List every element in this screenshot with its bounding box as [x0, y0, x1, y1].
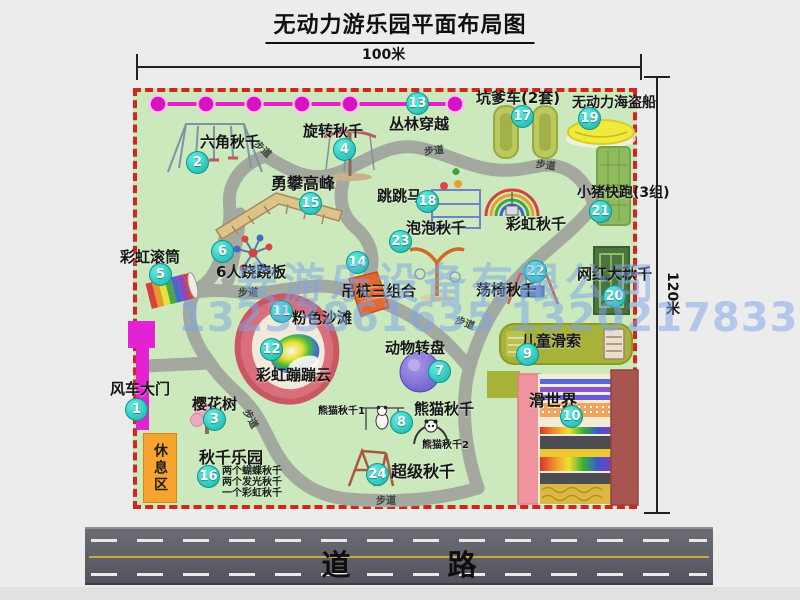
facility-badge-5: 5 — [149, 263, 172, 286]
facility-label-20: 网红大秋千 — [577, 266, 652, 283]
facility-label-15: 勇攀高峰 — [271, 175, 335, 193]
facility-label-6: 6人跷跷板 — [216, 264, 286, 281]
dim-tick-right — [640, 54, 642, 80]
facility-badge-10: 10 — [560, 405, 583, 428]
facility-badge-11: 11 — [270, 300, 293, 323]
facility-label-13: 丛林穿越 — [389, 116, 449, 133]
facility-badge-3: 3 — [203, 408, 226, 431]
road-shoulder — [0, 587, 800, 600]
facility-badge-15: 15 — [299, 192, 322, 215]
dim-tick-bottom — [644, 512, 670, 514]
facility-label-21: 小猪快跑(3组) — [577, 186, 670, 201]
walkway-label-2: 步道 — [423, 141, 444, 158]
facility-label-24: 超级秋千 — [391, 463, 455, 481]
facility-badge-12: 12 — [260, 338, 283, 361]
extra-label-2: 熊猫秋千1 — [318, 406, 365, 417]
facility-label-14: 吊桩三组合 — [341, 283, 416, 300]
facility-label-12: 彩虹蹦蹦云 — [256, 367, 331, 384]
facility-label-22: 荡椅秋千 — [476, 282, 536, 299]
facility-label-16: 秋千乐园 — [199, 449, 263, 467]
walkway-label-3: 步道 — [535, 155, 557, 173]
road: 道 路 — [85, 527, 713, 585]
facility-badge-2: 2 — [186, 151, 209, 174]
facility-label-8: 熊猫秋千 — [414, 401, 474, 418]
dim-label-120m: 120米 — [662, 272, 682, 315]
dim-line-vertical — [656, 77, 658, 514]
facility-badge-8: 8 — [390, 411, 413, 434]
dim-tick-left — [136, 54, 138, 80]
facility-badge-23: 23 — [389, 230, 412, 253]
page-title: 无动力游乐园平面布局图 — [265, 7, 534, 44]
rest-area: 休息区 — [143, 433, 177, 503]
facility-badge-4: 4 — [333, 138, 356, 161]
dim-label-100m: 100米 — [362, 44, 405, 64]
swing-park-notes: 两个蝴蝶秋千两个发光秋千一个彩虹秋千 — [222, 466, 282, 499]
facility-label-23: 泡泡秋千 — [406, 220, 466, 237]
facility-badge-9: 9 — [516, 343, 539, 366]
facility-label-4: 旋转秋千 — [303, 123, 363, 140]
dim-line-horizontal — [137, 66, 642, 68]
extra-label-1: 彩虹秋千 — [506, 216, 566, 233]
walkway-label-4: 步道 — [238, 284, 258, 299]
facility-badge-6: 6 — [211, 240, 234, 263]
facility-badge-13: 13 — [406, 92, 429, 115]
facility-badge-19: 19 — [578, 107, 601, 130]
facility-badge-14: 14 — [346, 251, 369, 274]
facility-badge-7: 7 — [428, 360, 451, 383]
road-label: 道 路 — [85, 542, 713, 584]
facility-badge-18: 18 — [416, 190, 439, 213]
facility-badge-24: 24 — [366, 463, 389, 486]
park-layout-plan: 无动力游乐园平面布局图 100米 120米 — [0, 0, 800, 600]
walkway-label-6: 步道 — [376, 492, 396, 507]
rest-area-label: 休息区 — [150, 443, 170, 494]
facility-badge-16: 16 — [197, 465, 220, 488]
facility-label-1: 风车大门 — [110, 381, 170, 398]
dim-tick-top — [644, 76, 670, 78]
facility-badge-17: 17 — [511, 105, 534, 128]
facility-label-11: 粉色沙滩 — [292, 310, 352, 327]
facility-label-7: 动物转盘 — [385, 340, 445, 357]
extra-label-3: 熊猫秋千2 — [422, 440, 469, 451]
facility-badge-20: 20 — [603, 285, 626, 308]
facility-badge-21: 21 — [589, 200, 612, 223]
facility-label-17: 坑爹车(2套) — [476, 90, 560, 107]
facility-badge-1: 1 — [125, 398, 148, 421]
facility-label-2: 六角秋千 — [200, 134, 260, 151]
facility-badge-22: 22 — [524, 260, 547, 283]
facility-label-5: 彩虹滚筒 — [120, 249, 180, 266]
